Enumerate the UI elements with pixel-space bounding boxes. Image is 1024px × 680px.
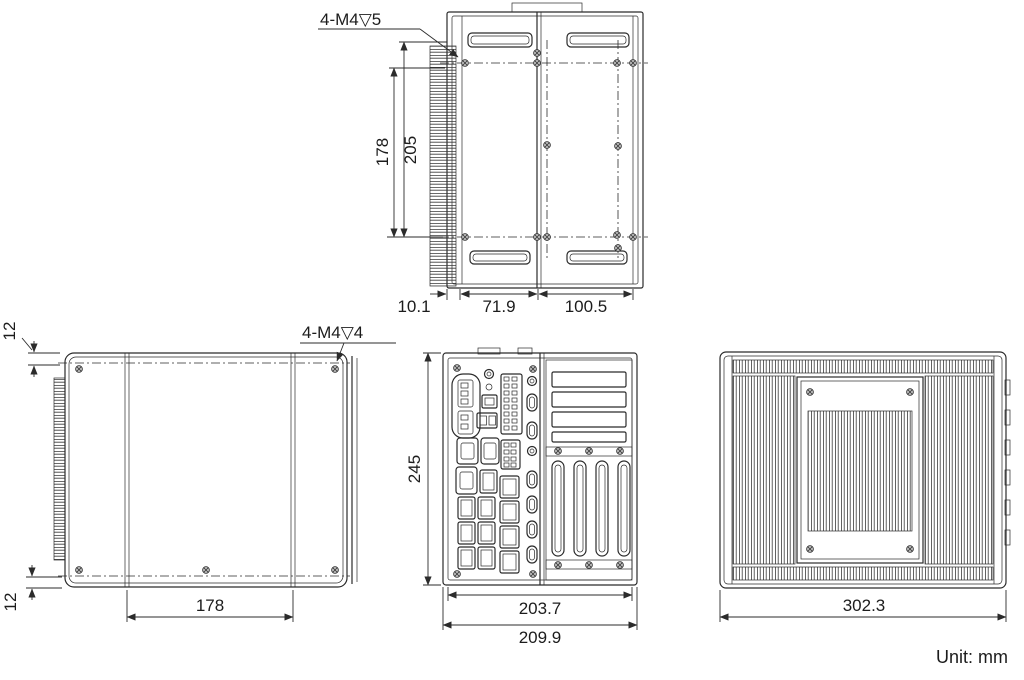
- expansion-slot: [618, 461, 630, 556]
- expansion-slot: [574, 461, 586, 556]
- dim-label-edge-top: 12: [0, 322, 19, 341]
- antenna-holes-column: [527, 377, 537, 564]
- lan-port: [500, 476, 519, 498]
- top-view-outline: [447, 12, 643, 288]
- dim-label-width-inner: 203.7: [519, 599, 562, 618]
- power-terminal-block: [452, 374, 480, 438]
- vga-port: [456, 467, 477, 494]
- terminal-block: [501, 440, 520, 469]
- com-port: [457, 438, 478, 464]
- fan-cover-plate: [797, 377, 923, 563]
- top-vent-slot: [468, 33, 532, 47]
- dimensional-drawing-page: 4-M4▽5 178 205 10.1 71.9 100.5: [0, 0, 1024, 680]
- heatsink-edge-fins: [54, 378, 65, 560]
- dim-label-71-9: 71.9: [482, 297, 515, 316]
- left-view-outline: [65, 353, 347, 587]
- fan-fins: [808, 411, 912, 531]
- top-view: [430, 3, 648, 288]
- heatsink-fins-left: [733, 376, 795, 564]
- dim-label-100-5: 100.5: [565, 297, 608, 316]
- serrated-band-bottom: [733, 567, 993, 580]
- heatsink-fins-right: [925, 376, 993, 564]
- dimensional-drawing: 4-M4▽5 178 205 10.1 71.9 100.5: [0, 0, 1024, 680]
- lan-port: [500, 501, 519, 523]
- expansion-slot: [552, 461, 564, 556]
- dim-label-depth-outer: 178: [373, 138, 392, 166]
- display-port: [480, 470, 497, 493]
- left-side-view: [54, 353, 357, 587]
- expansion-slot: [596, 461, 608, 556]
- dim-label-edge-bottom: 12: [1, 593, 20, 612]
- dim-label-depth-inner: 205: [401, 136, 420, 164]
- unit-note: Unit: mm: [936, 647, 1008, 667]
- top-vent-slot: [567, 33, 629, 47]
- usb-ports: [458, 497, 495, 569]
- remote-switch-connector: [482, 395, 497, 408]
- right-side-view: [720, 352, 1010, 588]
- mounting-screws-top-view: [462, 50, 637, 252]
- top-view-bracket-lip: [512, 3, 582, 12]
- dim-label-left-thread: 4-M4▽4: [302, 323, 363, 342]
- left-view-inner-outline: [69, 357, 343, 583]
- lan-port: [500, 526, 519, 548]
- leader-line: [22, 338, 32, 350]
- dim-label-depth: 302.3: [843, 596, 886, 615]
- com-port: [481, 438, 499, 464]
- lan-port: [500, 551, 519, 573]
- blank-bracket: [552, 412, 626, 427]
- heatsink-fins-top-view: [430, 46, 456, 286]
- front-view-dimensions: 245 203.7 209.9: [405, 353, 637, 647]
- blank-bracket: [552, 372, 626, 387]
- front-view: [443, 348, 637, 585]
- dim-label-top-thread: 4-M4▽5: [320, 10, 381, 29]
- dim-label-10-1: 10.1: [397, 297, 430, 316]
- blank-bracket: [552, 392, 626, 407]
- top-vent-slot: [470, 251, 530, 264]
- top-view-dimensions: 4-M4▽5 178 205 10.1 71.9 100.5: [318, 10, 633, 316]
- top-view-inner-outline: [452, 16, 638, 284]
- serrated-band-top: [733, 360, 993, 373]
- dim-label-height: 245: [405, 455, 424, 483]
- dim-label-hole-spacing: 178: [196, 596, 224, 615]
- mounting-screws-left-view: [76, 366, 339, 574]
- expansion-slot-area: [546, 360, 632, 580]
- dim-label-width-outer: 209.9: [519, 628, 562, 647]
- led-indicator: [486, 384, 492, 390]
- right-view-dimensions: 302.3: [720, 590, 1006, 622]
- terminal-block: [501, 374, 522, 434]
- blank-bracket: [552, 432, 626, 442]
- power-button: [485, 370, 494, 379]
